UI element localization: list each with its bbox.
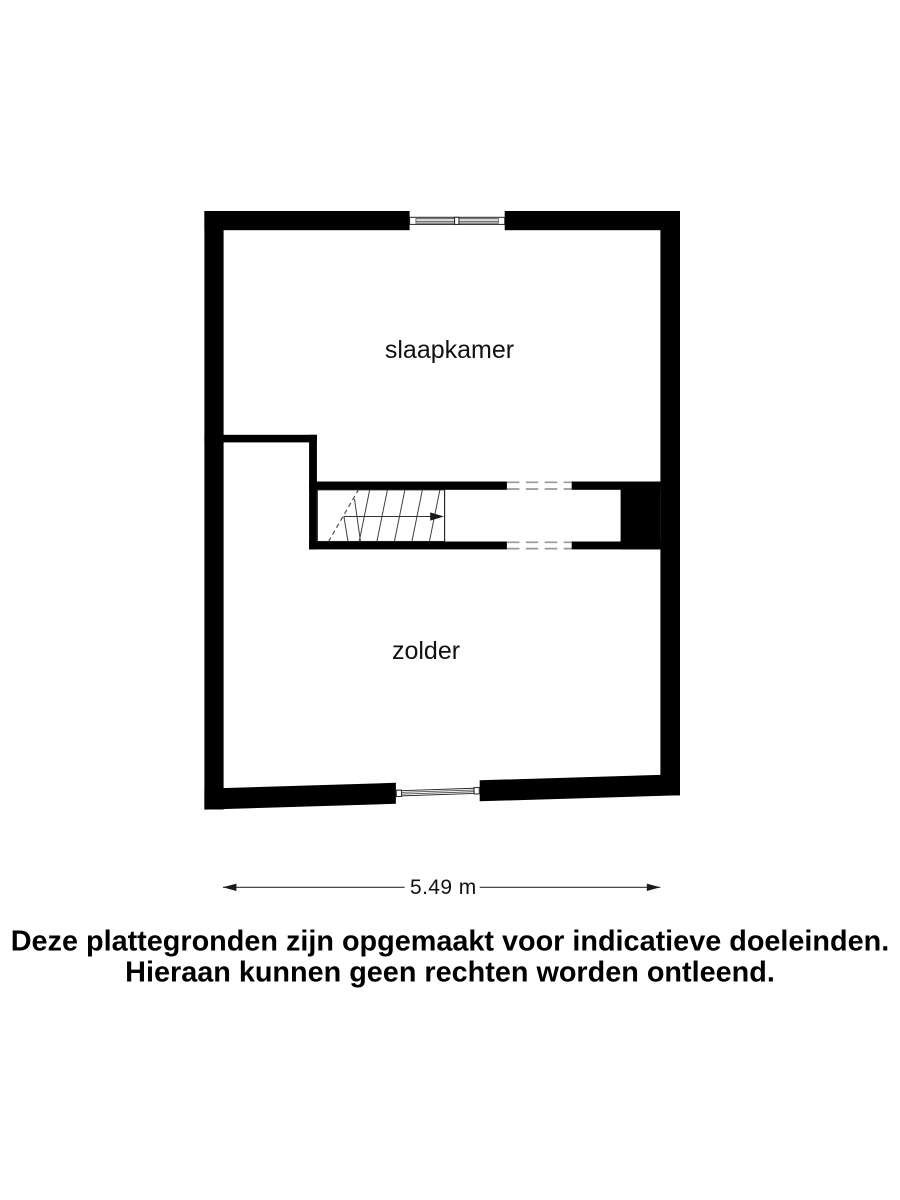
svg-text:Hieraan kunnen geen rechten wo: Hieraan kunnen geen rechten worden ontle… (125, 956, 775, 988)
svg-text:zolder: zolder (392, 637, 460, 665)
svg-text:slaapkamer: slaapkamer (385, 336, 514, 364)
svg-text:Deze plattegronden zijn opgema: Deze plattegronden zijn opgemaakt voor i… (11, 925, 889, 957)
svg-text:5.49 m: 5.49 m (410, 876, 477, 899)
